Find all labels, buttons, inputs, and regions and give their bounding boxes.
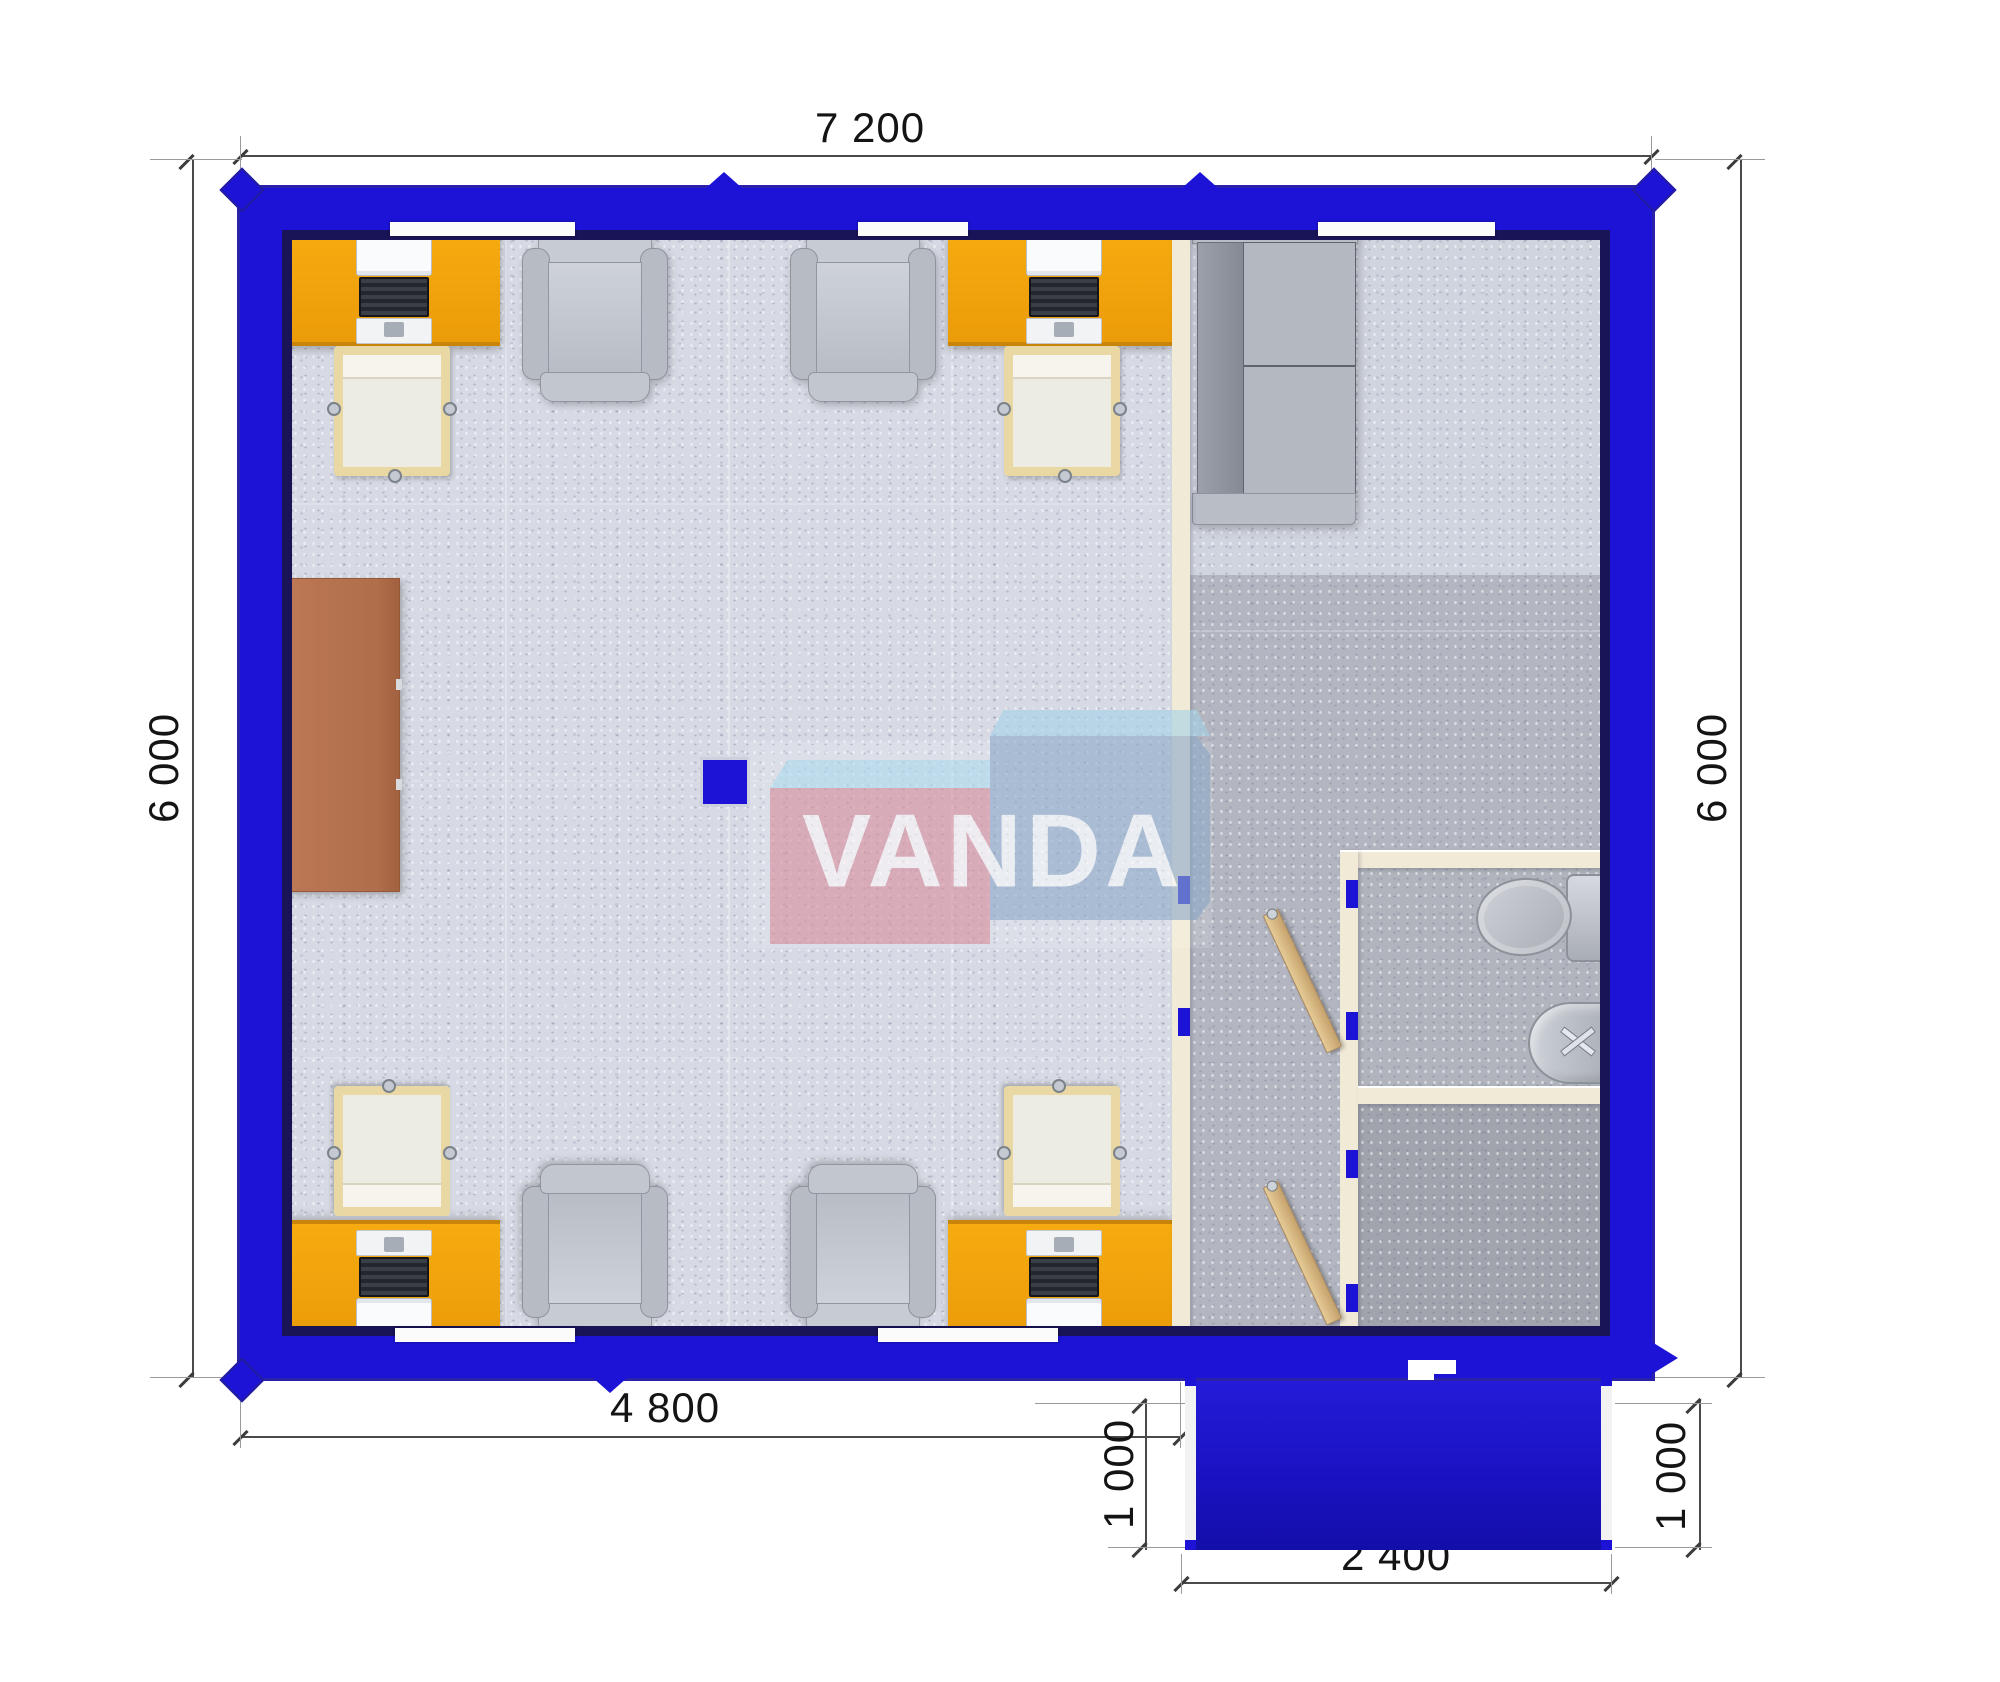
dim-tick bbox=[1685, 1542, 1701, 1558]
armchair bbox=[790, 232, 936, 402]
desk-chair bbox=[334, 346, 450, 476]
laptop-icon bbox=[1026, 234, 1102, 344]
laptop-icon bbox=[356, 1230, 432, 1340]
armchair bbox=[522, 232, 668, 402]
dim-extension bbox=[1180, 1382, 1181, 1448]
dim-extension bbox=[1035, 1403, 1192, 1404]
laptop-icon bbox=[1026, 1230, 1102, 1340]
porch-rail-post bbox=[1185, 1376, 1196, 1386]
dim-label-left-height: 6 000 bbox=[140, 713, 188, 823]
support-column bbox=[700, 757, 750, 807]
dim-extension bbox=[1181, 1554, 1182, 1594]
dim-line-top bbox=[240, 155, 1652, 157]
laptop-icon bbox=[356, 234, 432, 344]
wall-joint-marker bbox=[1182, 172, 1218, 188]
dim-line-left bbox=[192, 160, 194, 1378]
bathroom-left-wall bbox=[1340, 850, 1358, 1336]
wall-corner-marker bbox=[219, 167, 264, 212]
dim-extension bbox=[1611, 1554, 1612, 1594]
dim-tick bbox=[178, 1372, 194, 1388]
wall-corner-marker bbox=[1631, 167, 1676, 212]
dim-extension bbox=[1615, 1403, 1712, 1404]
lounge-floor-seam bbox=[1190, 630, 1610, 632]
floor-plan-canvas: VANDA 7 200 6 000 6 000 4 800 1 000 1 00… bbox=[0, 0, 2000, 1682]
wall-joint-marker bbox=[706, 172, 742, 188]
window-icon bbox=[395, 1328, 575, 1342]
dim-label-top-width: 7 200 bbox=[815, 104, 925, 152]
dim-tick bbox=[1131, 1542, 1147, 1558]
shower-door-jamb-top bbox=[1346, 1150, 1358, 1178]
dim-extension bbox=[1655, 159, 1765, 160]
desk-chair bbox=[1004, 346, 1120, 476]
entrance-door-step bbox=[1408, 1374, 1434, 1380]
desk-chair bbox=[1004, 1086, 1120, 1216]
storage-cabinet bbox=[284, 578, 400, 892]
main-partition-wall bbox=[1172, 230, 1190, 1336]
dim-label-porch-right: 1 000 bbox=[1647, 1421, 1695, 1531]
dim-label-porch-left: 1 000 bbox=[1095, 1419, 1143, 1529]
dim-extension bbox=[150, 159, 242, 160]
bathroom-top-wall bbox=[1340, 850, 1610, 868]
wall-corner-arrow bbox=[1652, 1342, 1678, 1374]
entrance-porch bbox=[1185, 1376, 1612, 1550]
partition-door-jamb-bottom bbox=[1178, 1008, 1190, 1036]
dim-label-right-height: 6 000 bbox=[1688, 713, 1736, 823]
dim-line-porch-right bbox=[1699, 1400, 1701, 1550]
sink-icon bbox=[1528, 1002, 1614, 1084]
porch-rail-post bbox=[1601, 1540, 1612, 1550]
porch-rail-post bbox=[1601, 1376, 1612, 1386]
window-icon bbox=[878, 1328, 1058, 1342]
desk-chair bbox=[334, 1086, 450, 1216]
dim-line-right bbox=[1740, 160, 1742, 1378]
dim-extension bbox=[1615, 1547, 1712, 1548]
armchair bbox=[790, 1164, 936, 1334]
porch-rail-post bbox=[1185, 1540, 1196, 1550]
cabinet-handle-icon bbox=[396, 679, 402, 690]
shower-door-jamb-bottom bbox=[1346, 1284, 1358, 1312]
dim-extension bbox=[1108, 1547, 1192, 1548]
dim-line-porch-bottom bbox=[1181, 1582, 1612, 1584]
cabinet-handle-icon bbox=[396, 779, 402, 790]
bathroom-divider-wall bbox=[1358, 1086, 1610, 1104]
window-icon bbox=[858, 222, 968, 236]
partition-door-jamb-top bbox=[1178, 876, 1190, 904]
entrance-door-threshold bbox=[1408, 1360, 1456, 1374]
wall-joint-marker bbox=[592, 1377, 628, 1393]
dim-line-porch-left bbox=[1145, 1400, 1147, 1550]
armchair bbox=[522, 1164, 668, 1334]
porch-rail-right bbox=[1601, 1384, 1612, 1542]
wall-corner-marker bbox=[219, 1357, 264, 1402]
dim-tick bbox=[1726, 1372, 1742, 1388]
wc-door-jamb-bottom bbox=[1346, 1012, 1358, 1040]
window-icon bbox=[1318, 222, 1495, 236]
window-icon bbox=[390, 222, 575, 236]
dim-line-bottom-left bbox=[240, 1436, 1181, 1438]
wc-door-jamb-top bbox=[1346, 880, 1358, 908]
shower-room-floor bbox=[1358, 1104, 1610, 1336]
dim-extension bbox=[1655, 1377, 1765, 1378]
porch-rail-left bbox=[1185, 1384, 1196, 1542]
